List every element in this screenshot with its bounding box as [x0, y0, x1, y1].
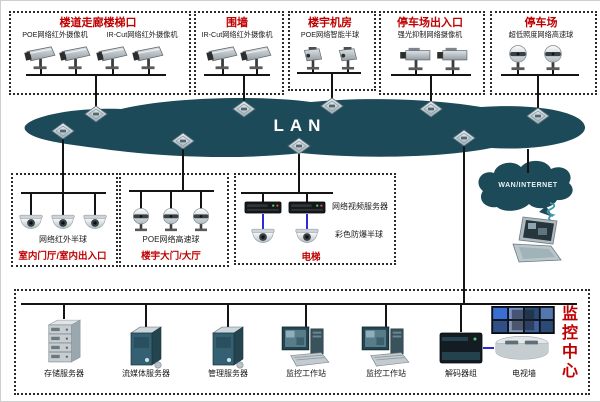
monitor-workstation-icon: [282, 327, 329, 366]
device-label: 管理服务器: [188, 370, 268, 379]
device-label: 存储服务器: [24, 370, 104, 379]
video-encoder-icon: [289, 202, 325, 213]
management-server-icon: [213, 327, 243, 368]
parking-gate-cameras: [400, 48, 467, 70]
equipment-room-cameras: [304, 47, 356, 70]
bullet-camera-icon: [96, 47, 127, 69]
camera-label: POE网络红外摄像机: [10, 31, 100, 39]
camera-label: 超低照度网络高速球: [495, 31, 587, 39]
parking-lot-cameras: [510, 45, 562, 70]
perimeter-cameras: [206, 47, 271, 69]
laptop-icon: [513, 217, 561, 262]
tv-wall-screens-icon: [492, 306, 555, 333]
camera-label: POE网络智能半球: [286, 31, 374, 39]
camera-label: IR-Cut网络红外摄像机: [192, 31, 282, 39]
surveillance-topology-diagram: LAN WAN/INTERNET 楼道走廊楼梯口 POE网络红外摄像机 IR-C…: [0, 0, 600, 402]
zone-title-building-gate: 楼宇大门/大厅: [121, 248, 221, 262]
device-label: 电视墙: [484, 370, 564, 379]
bullet-camera-icon: [59, 47, 90, 69]
speed-dome-icon: [510, 45, 527, 70]
zone-title-corridor: 楼道走廊楼梯口: [28, 14, 168, 30]
zone-title-elevator: 电梯: [286, 249, 336, 263]
monitoring-center-title: 监控中心: [555, 305, 579, 387]
video-encoder-icon: [245, 202, 281, 213]
speed-dome-icon: [545, 45, 562, 70]
zone-title-equipment-room: 楼宇机房: [290, 14, 370, 30]
device-label: 彩色防爆半球: [329, 231, 389, 240]
bullet-camera-icon: [24, 47, 55, 69]
streaming-server-icon: [131, 327, 161, 368]
bullet-camera-icon: [132, 47, 163, 69]
camera-label: 强光抑制网络摄像机: [384, 31, 476, 39]
speed-dome-icon: [133, 208, 148, 231]
mini-dome-icon: [20, 215, 42, 228]
zone-title-perimeter-wall: 围墙: [197, 14, 277, 30]
ptz-camera-icon: [304, 47, 321, 70]
ptz-camera-icon: [339, 47, 356, 70]
monitoring-center-devices: [49, 306, 554, 368]
box-camera-icon: [437, 48, 467, 70]
mini-dome-icon: [84, 215, 106, 228]
monitor-workstation-icon: [362, 327, 409, 366]
decoder-group-icon: [440, 333, 482, 363]
indoor-lobby-cameras: [20, 215, 106, 228]
camera-label: POE网络高速球: [125, 236, 217, 245]
diagram-canvas: [1, 1, 600, 401]
storage-server-icon: [49, 320, 80, 362]
wan-label: WAN/INTERNET: [486, 182, 570, 189]
tv-wall-console-icon: [496, 336, 549, 359]
mini-dome-icon: [52, 215, 74, 228]
speed-dome-icon: [163, 208, 178, 231]
device-label: 流媒体服务器: [106, 370, 186, 379]
mini-dome-icon: [252, 229, 274, 242]
speed-dome-icon: [193, 208, 208, 231]
bullet-camera-icon: [240, 47, 271, 69]
zone-title-parking-gate: 停车场出入口: [380, 14, 480, 30]
elevator-devices: [245, 202, 325, 243]
camera-label: IR-Cut网络红外摄像机: [97, 31, 187, 39]
building-gate-cameras: [133, 208, 208, 231]
camera-label: 网络红外半球: [17, 236, 109, 245]
device-label: 监控工作站: [346, 370, 426, 379]
corridor-cameras: [24, 47, 163, 69]
zone-title-indoor-lobby: 室内门厅/室内出入口: [13, 248, 112, 262]
bullet-camera-icon: [206, 47, 237, 69]
device-label: 网络视频服务器: [329, 203, 391, 212]
lan-label: LAN: [265, 116, 335, 136]
device-label: 监控工作站: [266, 370, 346, 379]
box-camera-icon: [400, 48, 430, 70]
zone-title-parking-lot: 停车场: [491, 14, 591, 30]
mini-dome-icon: [296, 229, 318, 242]
